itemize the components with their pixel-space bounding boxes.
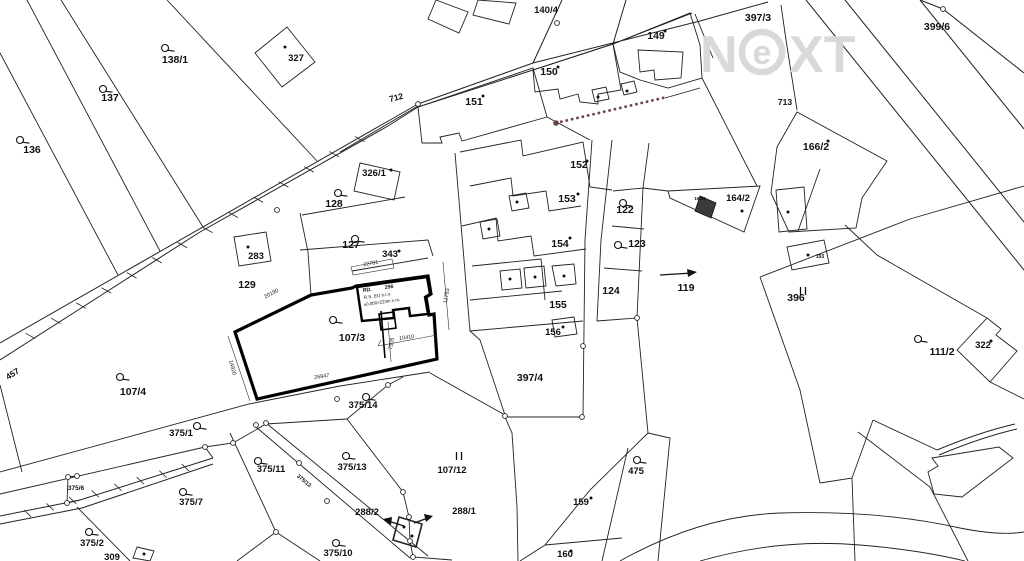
landuse-symbol-icon [117,374,130,381]
building-dot-icon [569,237,572,240]
parcel-label: 712 [388,91,404,104]
building-dot-icon [626,90,629,93]
survey-point-icon [297,461,302,466]
parcel-label: 397/3 [745,12,771,24]
landuse-tail [200,428,207,429]
contour-curves [620,513,1024,561]
landuse-tail [92,534,99,535]
landuse-tail [123,379,130,380]
building-dot-icon [807,254,810,257]
landuse-circle [915,336,922,343]
parcel-label: 150 [540,66,558,78]
survey-point-icon [401,490,406,495]
landuse-symbol-icon [162,45,175,52]
strip-375-1 [0,372,430,494]
parcel-375-11 [230,433,320,561]
landuse-circle [333,540,340,547]
arrow-119-line [660,273,692,275]
building-dot-icon [563,275,566,278]
parcel-label: 288/2 [355,507,379,518]
building-dot-icon [390,169,393,172]
building-dot-icon [398,250,401,253]
building-dot-icon [284,46,287,49]
parcel-label: 375/14 [348,400,378,411]
landuse-symbol-icon [17,137,30,144]
dotted-boundary-start-point [553,120,559,126]
landuse-symbol-icon [615,242,628,249]
survey-point-icon [66,475,71,480]
landuse-symbol-icon [194,423,207,430]
parcel-label: 713 [778,97,792,107]
landuse-tail [168,50,175,51]
road-hatch-tick [24,510,31,517]
landuse-circle [180,489,187,496]
parcel-label: 375/6 [68,485,85,492]
landuse-symbol-icon [915,336,928,343]
parcel-label: 152 [570,159,588,171]
parcel-label: 127 [342,239,360,251]
parcel-label: 111/2 [929,346,954,358]
parcel-label: 149 [647,30,665,42]
landuse-tail [349,458,356,459]
building-dot-icon [534,276,537,279]
landuse-symbol-icon [86,529,99,536]
parcel-label: 193 [816,254,825,260]
building-dot-icon [562,326,565,329]
village-cluster [455,117,612,340]
dimension-label: 14920 [227,360,237,376]
survey-point-icon [408,539,413,544]
parcel-label: 288/1 [452,506,476,517]
parcel-label: 122 [616,204,634,216]
parcel-label: 457 [4,366,22,382]
parcel-label: 375/7 [179,497,203,508]
landuse-symbol-icon [335,190,348,197]
road-hatch-tick [26,333,36,338]
parcel-label: 155 [549,299,567,311]
survey-point-icon [941,7,946,12]
landuse-circle [343,453,350,460]
survey-point-icon [254,423,259,428]
parcel-label: 124 [602,285,620,297]
landuse-tail [186,494,193,495]
landuse-circle [86,529,93,536]
landuse-circle [194,423,201,430]
parcel-label: 129 [238,279,256,291]
building-dot-icon [787,211,790,214]
building-dot-icon [741,210,744,213]
building-dot-icon [516,201,519,204]
landuse-symbol-icon [343,453,356,460]
dotted-boundary [556,97,667,123]
arrows [383,269,697,526]
landuse-circle [634,457,641,464]
survey-point-icon [635,316,640,321]
arrow-house-right-head [424,514,433,522]
survey-point-icon [386,383,391,388]
parcel-label: 322 [975,340,991,351]
road-hatch-tick [51,318,61,323]
parcel-label: 396 [787,292,805,304]
parcel-label: 140/4 [534,5,558,16]
parcel-label: 136 [23,144,41,156]
landuse-symbol-icon [333,540,346,547]
survey-point-icon [503,414,508,419]
landuse-tail [336,322,343,323]
cluster-buildings [480,193,577,337]
survey-point-icon [275,208,280,213]
building-dot-icon [577,193,580,196]
parcel-475-wedge [520,318,670,561]
parcel-label: 375/2 [80,538,104,549]
watermark-xt: XT [789,26,856,84]
boundary-288 [347,419,452,560]
map-symbols [17,7,993,560]
survey-point-icon [416,102,421,107]
parcel-label: 123 [628,238,646,250]
parcel-label: 283 [248,251,264,262]
building-dot-icon [509,278,512,281]
watermark-n: N [700,26,738,84]
landuse-circle [330,317,337,324]
parcel-label: 397/4 [517,372,543,384]
parcel-label: 164/2 [726,193,750,204]
landuse-symbol-icon [330,317,343,324]
parcel-label: 475 [628,466,645,477]
parcel-boundaries-south [0,186,1024,561]
landuse-tail [921,341,928,342]
road-nw [0,104,418,360]
landuse-tail [640,462,647,463]
parcel-label: 343 [382,249,398,260]
landuse-symbol-icon [634,457,647,464]
parcel-397-4 [430,340,518,561]
survey-point-icon [264,421,269,426]
parcel-label: 153 [558,193,576,205]
cadastral-map-page: 136137138/1327283129128127326/1343107/31… [0,0,1024,561]
parcel-label: 151 [465,96,483,108]
parcel-label: 107/4 [120,386,146,398]
landuse-symbol-icon [180,489,193,496]
arrow-house-left-head [383,517,392,525]
building-dot-icon [247,246,250,249]
landuse-circle [335,190,342,197]
parcel-label: 128 [325,198,343,210]
building-dot-icon [411,535,414,538]
road-hatch-tick [69,497,76,504]
watermark-next-logo: N e XT [700,26,856,84]
parcel-label: 107/12 [437,465,466,476]
dimension-label: 11753 [443,288,451,304]
dimension-label: 7505 [388,337,396,350]
building-dot-icon [597,96,600,99]
parcel-label: 309 [104,552,120,561]
survey-point-icon [411,555,416,560]
survey-point-icon [581,344,586,349]
parcel-label: 375/12 [295,474,312,489]
watermark-e: e [753,34,772,72]
grass-mark-icon [457,452,462,460]
top-buildings [428,0,516,33]
building-dot-icon [403,526,406,529]
parcel-label: 375/11 [257,464,286,475]
building-dot-icon [143,553,146,556]
parcel-label: 159 [573,497,589,508]
parcel-label: 107/3 [339,332,365,344]
landuse-tail [341,195,348,196]
parcel-label: 119 [678,282,695,294]
parcel-label: 154 [551,238,569,250]
parcel-327 [255,27,315,87]
building-dot-icon [590,497,593,500]
survey-point-icon [325,499,330,504]
parcel-label: 166/2 [803,141,829,153]
road-hatch-tick [304,167,314,172]
dimension-label: 20190 [263,288,279,300]
dimension-label: 10410 [399,334,415,342]
survey-point-icon [407,515,412,520]
survey-point-icon [75,474,80,479]
landuse-circle [117,374,124,381]
building-dot-icon [488,228,491,231]
parcel-label: 375/1 [169,428,193,439]
survey-point-icon [335,397,340,402]
parcel-label: 156 [545,327,561,338]
parcel-111-2 [845,225,1024,561]
parcel-label: 137 [101,92,119,104]
landuse-tail [621,247,628,248]
parcel-label: 375/13 [337,462,366,473]
parcel-label: 164/4 [694,196,706,201]
landuse-circle [17,137,24,144]
dimension-label: 26847 [314,373,330,381]
parcel-label: 296 [384,284,394,291]
survey-point-icon [231,441,236,446]
survey-point-icon [65,501,70,506]
landuse-circle [162,45,169,52]
parcel-label: 375/10 [323,548,352,559]
right-boundaries [760,186,1024,561]
parcel-label: 326/1 [362,168,386,179]
survey-point-icon [555,21,560,26]
road-sw [0,447,213,524]
landuse-tail [339,545,346,546]
arrow-119-head [687,269,697,277]
cadastral-map: 136137138/1327283129128127326/1343107/31… [0,0,1024,561]
survey-point-icon [203,445,208,450]
landuse-circle [615,242,622,249]
parcel-label: 399/6 [924,21,950,33]
parcel-label: 138/1 [162,54,188,66]
survey-point-icon [580,415,585,420]
parcel-label: 160 [557,549,573,560]
survey-point-icon [274,530,279,535]
parcel-label: 327 [288,53,304,64]
